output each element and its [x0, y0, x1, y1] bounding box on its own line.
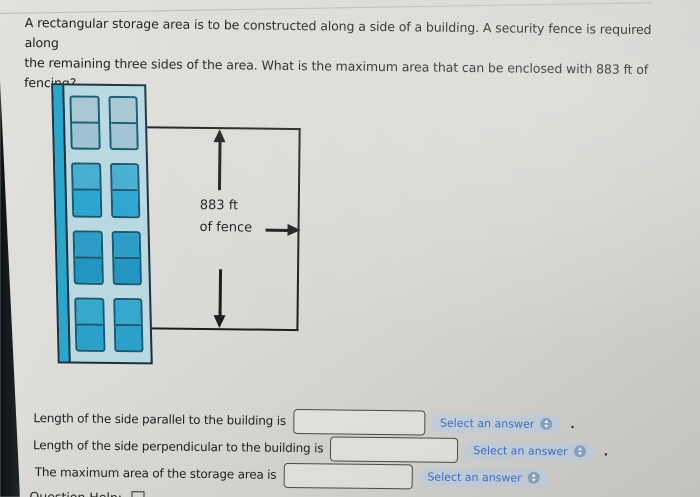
page-content: A rectangular storage area is to be cons… — [0, 0, 700, 497]
building-window — [111, 230, 142, 285]
building-window — [69, 95, 100, 150]
building-windows — [69, 95, 143, 352]
question-help-row: Question Help: — [29, 489, 144, 497]
fence-label-line2: of fence — [199, 220, 252, 236]
fence-length-label: 883 ft — [200, 198, 239, 213]
down-arrow-icon — [213, 315, 225, 328]
select-label: Select an answer — [440, 416, 535, 430]
answer-row-max-area: The maximum area of the storage area is … — [35, 458, 549, 492]
right-arrow-line — [266, 229, 290, 232]
building-window — [108, 96, 139, 151]
sentence-period: . — [604, 445, 609, 459]
max-area-label: The maximum area of the storage area is — [35, 465, 277, 482]
building-window — [113, 298, 144, 353]
building-side-stripe — [53, 85, 71, 361]
perpendicular-unit-select[interactable]: Select an answer — [464, 440, 595, 460]
parallel-length-input[interactable] — [293, 409, 425, 435]
select-label: Select an answer — [473, 444, 568, 458]
video-icon[interactable] — [131, 491, 144, 497]
building-window — [71, 163, 102, 218]
max-area-input[interactable] — [283, 462, 412, 488]
select-label: Select an answer — [427, 470, 522, 484]
perpendicular-length-label: Length of the side perpendicular to the … — [33, 438, 323, 455]
building-window — [73, 230, 104, 285]
building-window — [110, 163, 141, 218]
question-help-label: Question Help: — [29, 489, 122, 497]
max-area-unit-select[interactable]: Select an answer — [418, 467, 549, 487]
parallel-length-label: Length of the side parallel to the build… — [33, 411, 286, 428]
up-down-stepper-icon — [528, 472, 540, 484]
parallel-unit-select[interactable]: Select an answer — [431, 413, 562, 433]
up-down-stepper-icon — [574, 445, 586, 457]
building-window — [74, 297, 105, 352]
right-arrow-icon — [287, 224, 300, 236]
building-illustration — [51, 83, 153, 364]
perpendicular-length-input[interactable] — [330, 436, 458, 462]
up-down-stepper-icon — [540, 418, 552, 430]
sentence-period: . — [570, 417, 575, 431]
